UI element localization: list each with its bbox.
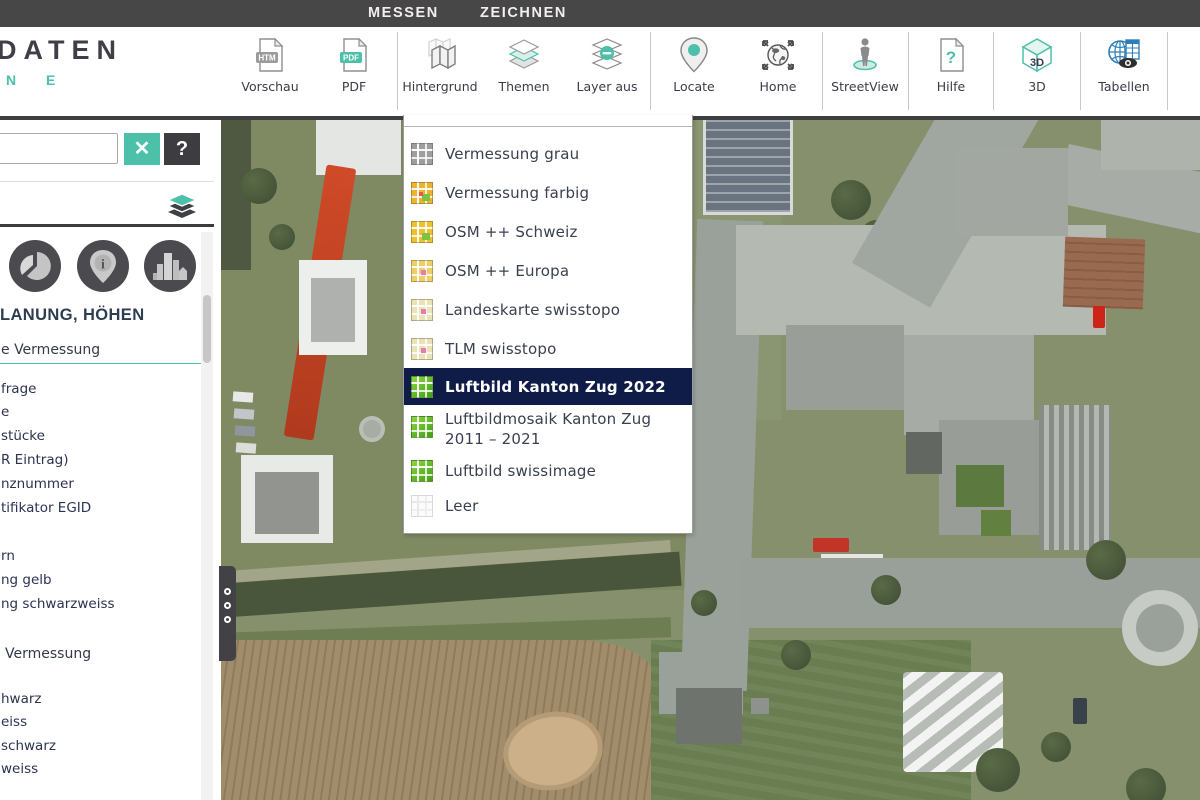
sidebar-item[interactable]: e [1, 404, 9, 422]
svg-text:?: ? [946, 48, 956, 67]
tab-messen[interactable]: MESSEN [368, 5, 439, 21]
layers-off-icon [588, 36, 626, 74]
toolbar: DATEN N E HTM Vorschau PDF PDF Hi [0, 27, 1200, 116]
svg-text:3D: 3D [1030, 57, 1044, 69]
toolbar-separator [650, 32, 651, 110]
menu-item-label: OSM ++ Schweiz [445, 223, 578, 241]
city-buildings-icon [144, 240, 196, 292]
document-question-icon: ? [932, 36, 970, 74]
sidebar-divider-dark [0, 224, 214, 227]
svg-text:i: i [101, 258, 105, 273]
toolbar-separator [993, 32, 994, 110]
menu-item-leer[interactable]: Leer [404, 485, 692, 527]
handle-dot-icon [224, 588, 231, 595]
hilfe-label: Hilfe [937, 79, 965, 94]
locate-button[interactable]: Locate [650, 30, 738, 112]
handle-dot-icon [224, 602, 231, 609]
clear-search-button[interactable]: ✕ [124, 133, 160, 165]
logo-line1: DATEN [0, 35, 123, 66]
menu-item-vermessung-farbig[interactable]: Vermessung farbig [404, 173, 692, 212]
threed-label: 3D [1028, 79, 1046, 94]
sidebar-scrollbar-thumb[interactable] [203, 295, 211, 363]
section-title: LANUNG, HÖHEN [0, 306, 145, 325]
vorschau-button[interactable]: HTM Vorschau [226, 30, 314, 112]
menu-item-osm-schweiz[interactable]: OSM ++ Schweiz [404, 212, 692, 251]
sidebar-item[interactable]: eiss [1, 714, 27, 732]
statistics-circle-button[interactable] [9, 240, 61, 292]
sidebar-item[interactable]: hwarz [1, 691, 42, 709]
map-tile-gray-icon [411, 143, 433, 165]
background-layer-menu: Vermessung grau Vermessung farbig OSM ++… [403, 115, 693, 534]
themen-button[interactable]: Themen [480, 30, 568, 112]
menu-item-label: Luftbild Kanton Zug 2022 [445, 378, 666, 396]
map-tile-orange-icon [411, 182, 433, 204]
pdf-label: PDF [342, 79, 366, 94]
sidebar-item[interactable]: stücke [1, 428, 45, 446]
document-htm-icon: HTM [251, 36, 289, 74]
map-tile-blank-icon [411, 495, 433, 517]
group-header-vermessung: e Vermessung [1, 342, 100, 358]
tab-zeichnen[interactable]: ZEICHNEN [480, 5, 567, 21]
group-header-underline [0, 363, 207, 364]
streetview-button[interactable]: StreetView [821, 30, 909, 112]
menu-item-osm-europa[interactable]: OSM ++ Europa [404, 251, 692, 290]
menu-item-label: Luftbild swissimage [445, 462, 596, 480]
locate-label: Locate [673, 79, 715, 94]
toolbar-separator [822, 32, 823, 110]
logo-line2: N E [6, 72, 123, 88]
layer-aus-label: Layer aus [577, 79, 638, 94]
toolbar-separator [908, 32, 909, 110]
sidebar-item[interactable]: frage [1, 381, 36, 399]
sidebar-item[interactable]: schwarz [1, 738, 56, 756]
pegman-icon [846, 36, 884, 74]
home-label: Home [760, 79, 797, 94]
sidebar-divider [0, 181, 214, 182]
layers-icon [165, 192, 199, 224]
menu-item-luftbild-2022-selected[interactable]: Luftbild Kanton Zug 2022 [404, 368, 692, 405]
globe-arrows-icon [759, 36, 797, 74]
question-icon: ? [176, 138, 188, 160]
sidebar-item[interactable]: rn [1, 548, 15, 566]
menu-item-landeskarte[interactable]: Landeskarte swisstopo [404, 290, 692, 329]
vorschau-label: Vorschau [241, 79, 298, 94]
menu-item-luftbild-swissimage[interactable]: Luftbild swissimage [404, 457, 692, 485]
menu-item-label: Vermessung grau [445, 145, 579, 163]
themen-label: Themen [498, 79, 549, 94]
document-pdf-icon: PDF [335, 36, 373, 74]
toolbar-separator [1167, 32, 1168, 110]
hilfe-button[interactable]: ? Hilfe [907, 30, 995, 112]
tabellen-button[interactable]: Tabellen [1080, 30, 1168, 112]
layer-stack-icon [505, 36, 543, 74]
menu-item-label: OSM ++ Europa [445, 262, 569, 280]
sidebar-item[interactable]: ng schwarzweiss [1, 596, 115, 614]
menu-item-label: Landeskarte swisstopo [445, 301, 620, 319]
menu-item-label: Leer [445, 497, 479, 515]
layers-toggle-button[interactable] [165, 192, 199, 224]
hintergrund-button[interactable]: Hintergrund [396, 30, 484, 112]
menu-item-tlm-swisstopo[interactable]: TLM swisstopo [404, 329, 692, 368]
menu-item-luftbildmosaik[interactable]: Luftbildmosaik Kanton Zug 2011 – 2021 [404, 405, 692, 457]
clear-icon: ✕ [134, 138, 151, 160]
group-header-vermessung-2: Vermessung [5, 646, 91, 662]
sidebar-scrollbar-track[interactable] [201, 232, 213, 800]
handle-dot-icon [224, 616, 231, 623]
folded-map-icon [421, 36, 459, 74]
sidebar-item[interactable]: R Eintrag) [1, 452, 68, 470]
app-logo: DATEN N E [0, 35, 123, 88]
map-tile-green-icon [411, 460, 433, 482]
map-tile-green-icon [411, 376, 433, 398]
layer-aus-button[interactable]: Layer aus [563, 30, 651, 112]
menu-item-label: TLM swisstopo [445, 340, 556, 358]
sidebar-item[interactable]: tifikator EGID [1, 500, 91, 518]
sidebar-panel: ✕ ? i LANUNG [0, 120, 221, 800]
map-pin-icon [675, 36, 713, 74]
pie-chart-icon [9, 240, 61, 292]
sidebar-item[interactable]: nznummer [1, 476, 74, 494]
sidebar-collapse-handle[interactable] [219, 566, 236, 661]
hintergrund-label: Hintergrund [402, 79, 477, 94]
search-help-button[interactable]: ? [164, 133, 200, 165]
svg-text:HTM: HTM [258, 54, 276, 63]
menu-item-label: Vermessung farbig [445, 184, 589, 202]
map-tile-lightyellow-icon [411, 260, 433, 282]
top-tab-bar: MESSEN ZEICHNEN [0, 0, 1200, 27]
svg-text:PDF: PDF [343, 54, 359, 63]
globe-table-eye-icon [1105, 36, 1143, 74]
tabellen-label: Tabellen [1098, 79, 1149, 94]
menu-item-vermessung-grau[interactable]: Vermessung grau [404, 134, 692, 173]
pdf-button[interactable]: PDF PDF [310, 30, 398, 112]
sidebar-item[interactable]: weiss [1, 761, 38, 779]
menu-item-label-line2: 2011 – 2021 [445, 430, 541, 448]
toolbar-separator [1080, 32, 1081, 110]
info-circle-button[interactable]: i [77, 240, 129, 292]
map-tile-pale-icon [411, 338, 433, 360]
info-pin-icon: i [77, 240, 129, 292]
search-input[interactable] [0, 133, 118, 164]
home-button[interactable]: Home [734, 30, 822, 112]
menu-item-label: Luftbildmosaik Kanton Zug [445, 410, 651, 428]
city-circle-button[interactable] [144, 240, 196, 292]
streetview-label: StreetView [831, 79, 899, 94]
threed-button[interactable]: 3D 3D [993, 30, 1081, 112]
map-viewport[interactable] [221, 120, 1200, 800]
map-tile-pale-icon [411, 299, 433, 321]
map-tile-green-icon [411, 416, 433, 438]
toolbar-separator [397, 32, 398, 110]
background-layer-list: Vermessung grau Vermessung farbig OSM ++… [404, 126, 692, 527]
cube-3d-icon: 3D [1018, 36, 1056, 74]
map-tile-yellow-icon [411, 221, 433, 243]
sidebar-item[interactable]: ng gelb [1, 572, 52, 590]
